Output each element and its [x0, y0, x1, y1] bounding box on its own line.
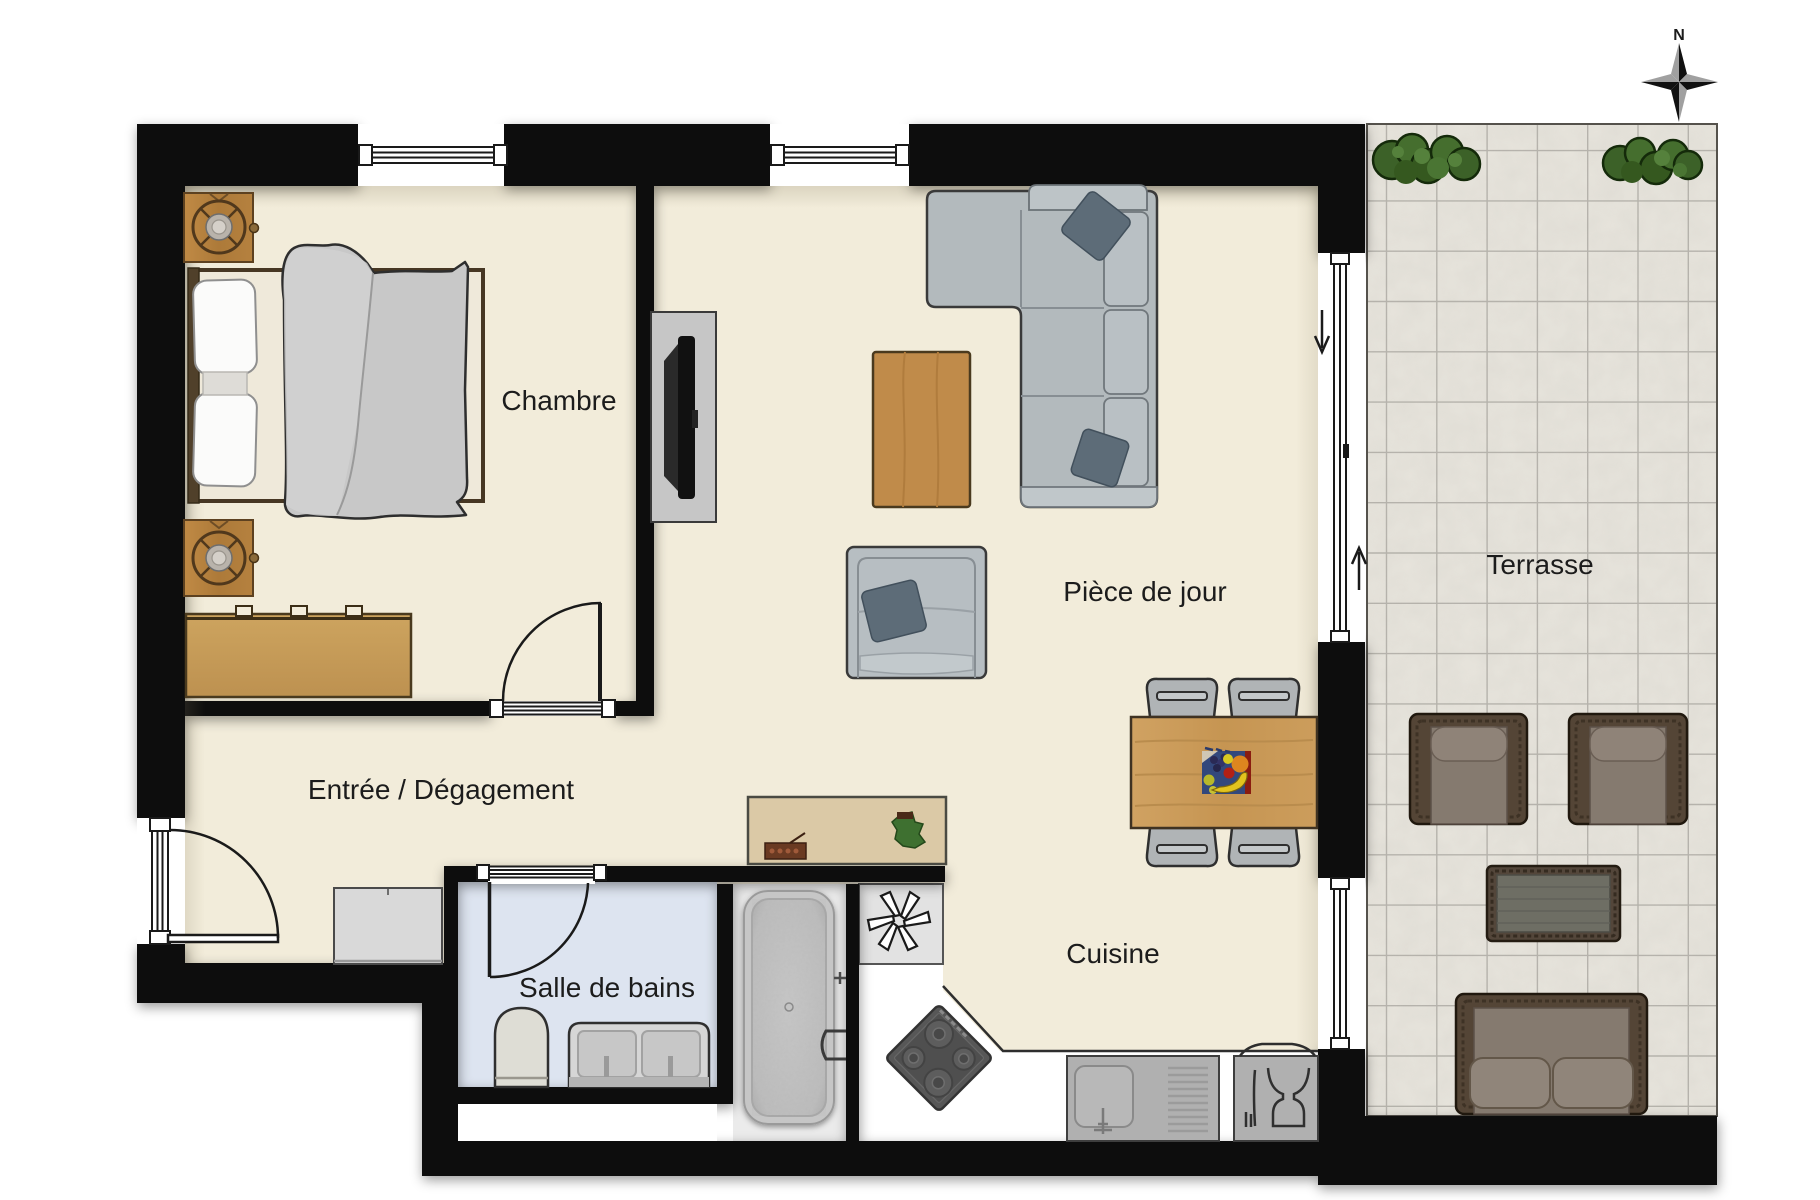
svg-text:Cuisine: Cuisine: [1066, 938, 1159, 969]
svg-text:Entrée / Dégagement: Entrée / Dégagement: [308, 774, 574, 805]
svg-text:Pièce de jour: Pièce de jour: [1063, 576, 1226, 607]
svg-text:Terrasse: Terrasse: [1486, 549, 1593, 580]
svg-text:N: N: [1673, 27, 1685, 44]
svg-text:Chambre: Chambre: [501, 385, 616, 416]
svg-text:Salle de bains: Salle de bains: [519, 972, 695, 1003]
